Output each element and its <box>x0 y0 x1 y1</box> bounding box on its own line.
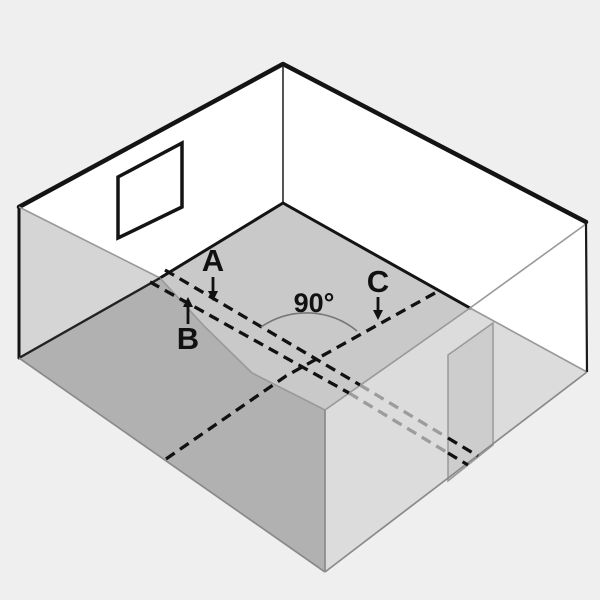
right-corner-edge <box>586 222 587 372</box>
angle-label: 90° <box>294 288 335 318</box>
label-b: B <box>177 321 199 356</box>
room-diagram: 90° A B C <box>0 0 600 600</box>
label-c: C <box>367 264 389 299</box>
label-a: A <box>202 243 224 278</box>
